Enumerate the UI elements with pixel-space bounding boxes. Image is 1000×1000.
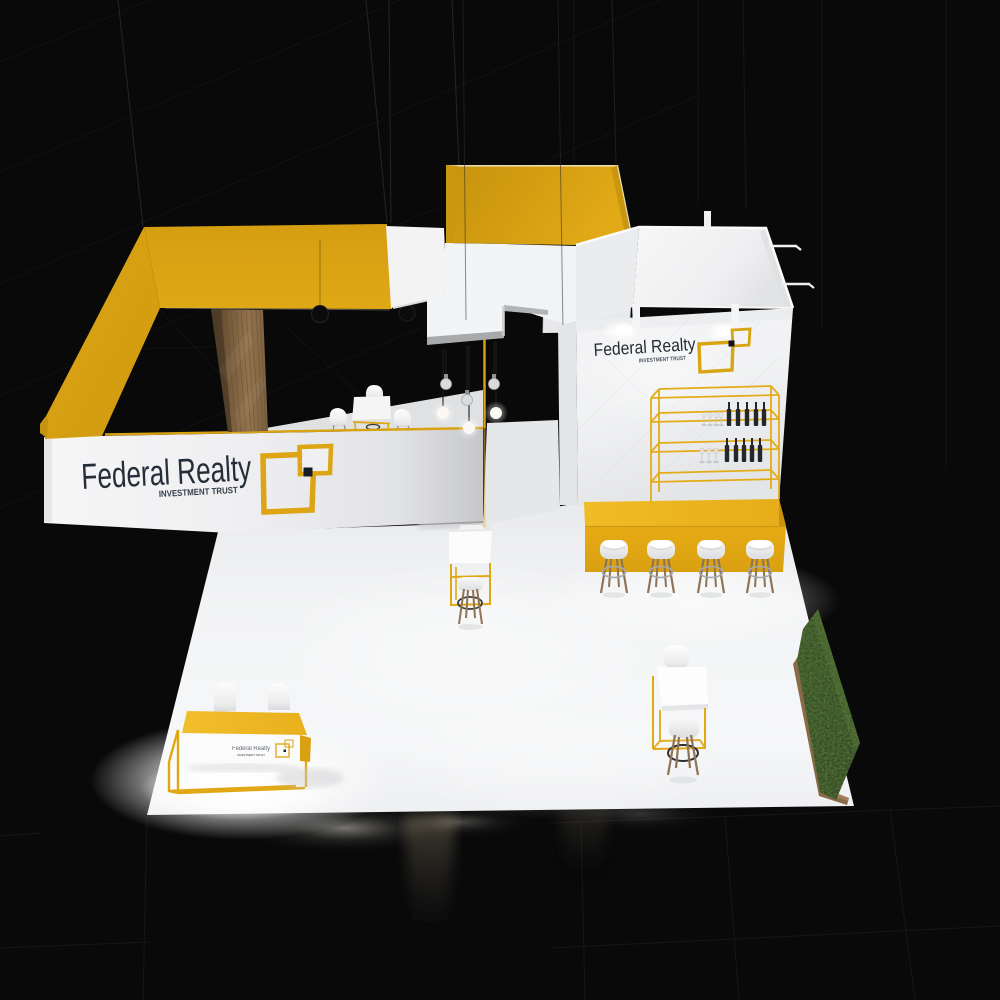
svg-text:INVESTMENT TRUST: INVESTMENT TRUST	[237, 753, 265, 757]
svg-text:Federal Realty: Federal Realty	[232, 746, 270, 752]
